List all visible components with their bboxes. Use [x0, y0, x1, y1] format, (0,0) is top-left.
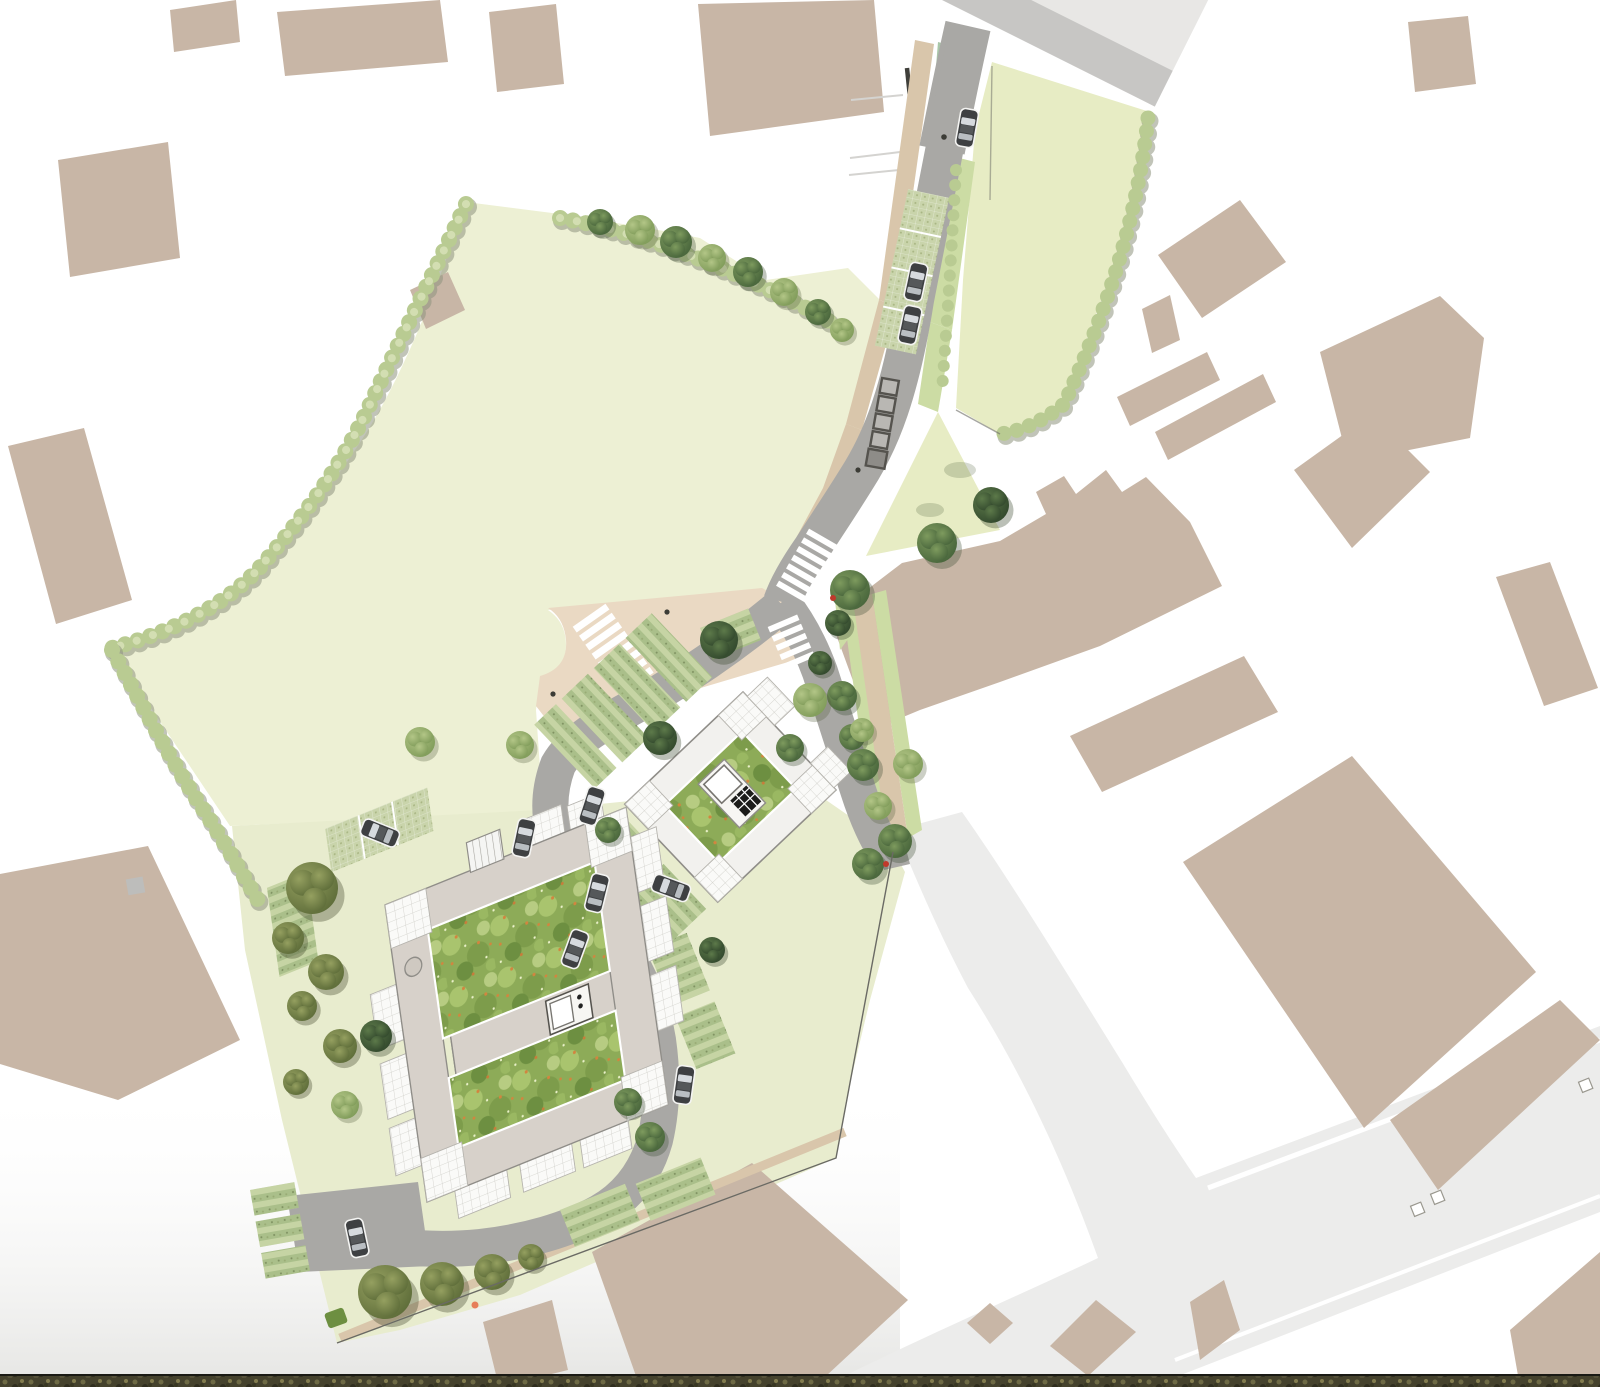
- bollard-dot: [855, 467, 860, 472]
- bollard-dot: [550, 691, 555, 696]
- hydrant-dot: [883, 861, 889, 867]
- context-building: [277, 0, 448, 76]
- context-building: [58, 142, 180, 277]
- bollard-dot: [941, 134, 947, 140]
- survey-dot: [472, 1302, 479, 1309]
- bin-unit: [880, 378, 899, 396]
- context-building: [0, 846, 240, 1100]
- context-building: [1142, 295, 1180, 353]
- context-building: [698, 0, 884, 136]
- context-building: [489, 4, 564, 92]
- hydrant-dot: [830, 595, 836, 601]
- tree-icon: [643, 721, 681, 760]
- context-building: [1070, 656, 1278, 792]
- context-building: [1496, 562, 1598, 706]
- bollard-dot: [664, 609, 669, 614]
- bin-unit: [873, 413, 892, 431]
- context-building: [8, 428, 132, 624]
- context-building: [1158, 200, 1286, 318]
- site-plan-canvas: [0, 0, 1600, 1387]
- bin-unit: [876, 396, 895, 414]
- bin-unit: [870, 431, 889, 449]
- masterplan-figure: Landscape masterplan site plan Aerial wa…: [0, 0, 1600, 1387]
- bin-unit: [866, 449, 888, 469]
- context-building: [1510, 1252, 1600, 1387]
- context-building: [170, 0, 240, 52]
- context-building: [1408, 16, 1476, 92]
- context-building-annex: [126, 877, 146, 896]
- boundary-hedge-strip: [0, 1374, 1600, 1387]
